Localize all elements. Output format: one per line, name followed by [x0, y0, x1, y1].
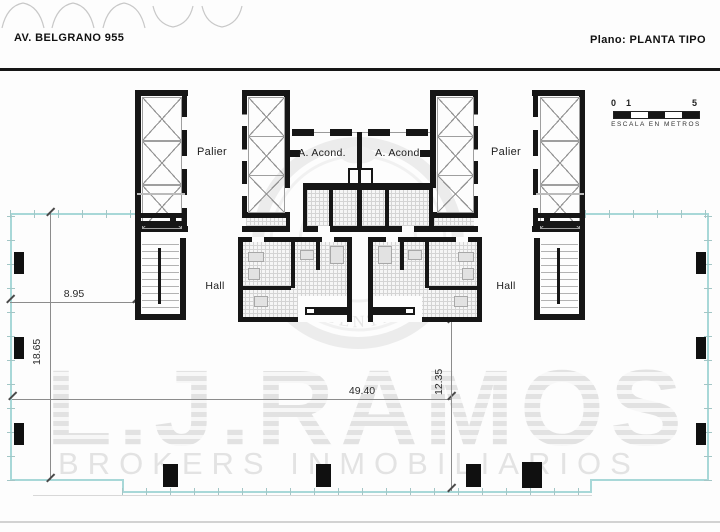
floor-plan: Palier Palier A. Acond. A. Acond. Hall H…	[0, 0, 244, 35]
plan-sheet: ARGENTINA L.J.RAMOS BROKERS INMOBILIARIO…	[0, 0, 720, 532]
wall	[535, 213, 584, 218]
room-label-palier-left: Palier	[188, 146, 236, 158]
stair-rail	[557, 248, 560, 304]
dim-line-side-left	[50, 213, 51, 480]
dim-line-side-right	[451, 322, 452, 491]
scale-end-label: 5	[692, 98, 697, 108]
watermark-subtitle: BROKERS INMOBILIARIOS	[58, 446, 678, 482]
scale-start-label: 0	[611, 98, 616, 108]
elevator-shaft	[142, 97, 182, 141]
elevator-shaft	[540, 97, 580, 141]
elevator-shaft	[540, 141, 580, 185]
wall	[180, 238, 186, 320]
wall-gapped	[242, 96, 247, 212]
wall	[135, 314, 186, 320]
dim-total-width: 49.40	[336, 385, 388, 397]
wall	[425, 242, 429, 288]
wall	[534, 238, 540, 320]
wall	[243, 286, 291, 290]
vestibule-line	[137, 193, 185, 195]
fixture	[248, 252, 264, 262]
wall-gapped	[533, 96, 538, 226]
wall	[429, 286, 477, 290]
stair-rail	[158, 248, 161, 304]
service-room-floor	[246, 218, 286, 226]
wall	[347, 237, 352, 322]
elevator-shaft	[248, 97, 285, 137]
elevator-shaft	[437, 97, 474, 137]
wall	[357, 132, 362, 170]
column	[696, 337, 706, 359]
door-gap	[386, 237, 398, 242]
wall	[430, 226, 478, 232]
scale-bar-strip	[613, 111, 700, 119]
column	[466, 464, 481, 487]
column	[316, 464, 331, 487]
fixture	[462, 268, 474, 280]
wall	[544, 213, 550, 226]
dim-side-left: 18.65	[31, 326, 43, 378]
boundary-bottom-right	[590, 479, 709, 481]
door-gap	[252, 237, 264, 242]
wall-gapped	[182, 96, 187, 226]
door-swing-arc	[0, 0, 46, 30]
wall	[430, 90, 436, 188]
column	[14, 423, 24, 445]
bath-floor	[303, 190, 433, 226]
wall	[535, 221, 584, 226]
wall	[135, 90, 141, 320]
vestibule-line	[536, 193, 584, 195]
room-label-hall-left: Hall	[190, 280, 240, 292]
wall	[170, 213, 176, 226]
door-swing-arc	[200, 4, 244, 30]
wall	[135, 90, 188, 96]
elevator-shaft	[248, 175, 285, 213]
service-room-floor	[434, 218, 474, 226]
elevator-shaft	[437, 136, 474, 176]
fixture	[248, 268, 260, 280]
scale-bar-caption: ESCALA EN METROS	[596, 121, 716, 128]
elevator-shaft	[437, 175, 474, 213]
wall	[357, 190, 362, 226]
dim-side-right: 12.35	[433, 356, 445, 408]
column	[696, 423, 706, 445]
wall	[291, 242, 295, 288]
dim-line-front-left	[10, 302, 137, 303]
column	[14, 337, 24, 359]
column	[522, 462, 542, 488]
watermark-layer: ARGENTINA L.J.RAMOS BROKERS INMOBILIARIO…	[0, 0, 720, 532]
wall	[534, 314, 585, 320]
door-gap	[456, 237, 468, 242]
wall	[400, 242, 404, 270]
fixture	[408, 250, 422, 260]
wall	[532, 90, 585, 96]
wall	[137, 221, 186, 226]
footer-rule	[0, 521, 720, 523]
elevator-shaft	[142, 141, 182, 185]
room-label-ac-right: A. Acond.	[364, 147, 434, 159]
fixture	[458, 252, 474, 262]
boundary-bottom-left	[10, 479, 122, 481]
column	[163, 464, 178, 487]
door-swing-arc	[151, 4, 195, 30]
dim-line-total-width	[12, 399, 452, 400]
elevator-shaft	[248, 136, 285, 176]
fixture	[254, 296, 268, 307]
wall	[137, 213, 186, 218]
room-label-ac-left: A. Acond.	[287, 147, 357, 159]
door-swing-arc	[50, 0, 96, 30]
wall-slot	[307, 309, 314, 313]
boundary-ticks-top	[10, 210, 135, 218]
terrace-line	[33, 495, 592, 496]
dim-front-left: 8.95	[50, 288, 98, 300]
room-label-hall-right: Hall	[481, 280, 531, 292]
wall	[316, 242, 320, 270]
fixture	[378, 246, 392, 264]
header-rule	[0, 68, 720, 71]
wall-slot	[406, 309, 413, 313]
scale-unit-label: 1	[626, 98, 631, 108]
column	[14, 252, 24, 274]
wall	[242, 226, 290, 232]
boundary-step-right	[590, 479, 592, 493]
column	[696, 252, 706, 274]
wall	[385, 190, 389, 226]
door-gap	[322, 237, 334, 242]
room-label-palier-right: Palier	[482, 146, 530, 158]
fixture	[330, 246, 344, 264]
wall	[430, 90, 478, 96]
door-gap	[402, 226, 414, 232]
door-gap	[318, 226, 330, 232]
wall	[329, 190, 333, 226]
wall	[429, 190, 433, 226]
wall	[242, 90, 290, 96]
door-swing-arc	[101, 0, 147, 30]
boundary-ticks-top2	[585, 210, 709, 218]
fixture	[300, 250, 314, 260]
wall	[303, 183, 433, 190]
wall	[303, 190, 307, 226]
fixture	[454, 296, 468, 307]
